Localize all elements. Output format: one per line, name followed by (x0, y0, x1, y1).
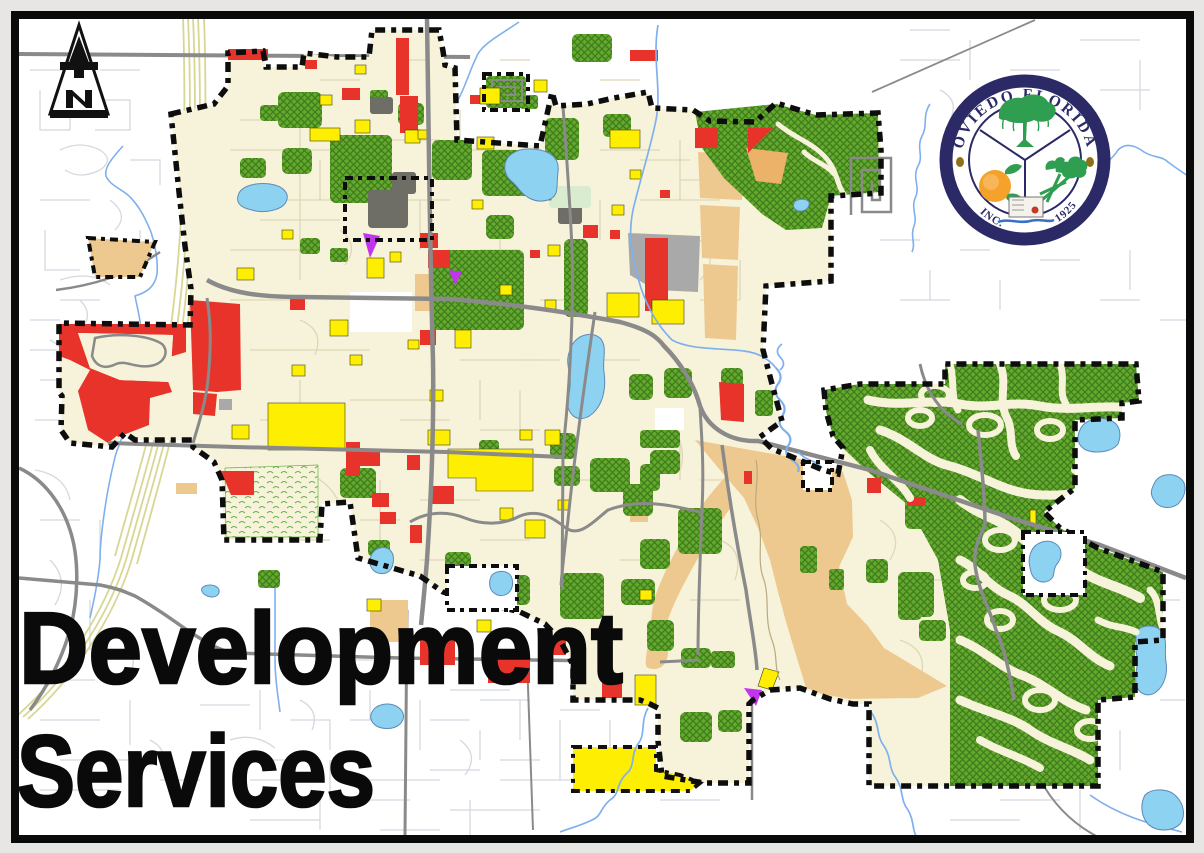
svg-text:Development: Development (19, 593, 623, 705)
svg-text:Services: Services (17, 716, 375, 828)
